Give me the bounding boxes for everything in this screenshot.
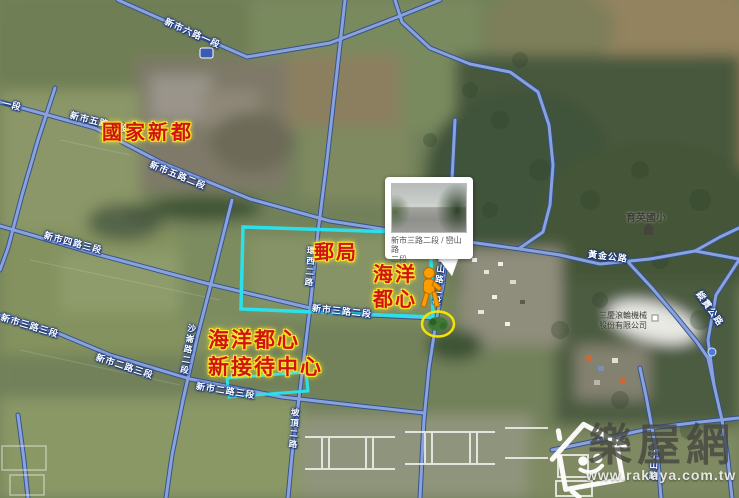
- watermark-url: www.rakuya.com.tw: [586, 468, 736, 482]
- map-canvas[interactable]: 新市六路一段 一段 新市五路二段 新市五路二段 新市四路三段 新市三路三段 新市…: [0, 0, 739, 498]
- watermark-brand: 樂屋網: [588, 424, 735, 468]
